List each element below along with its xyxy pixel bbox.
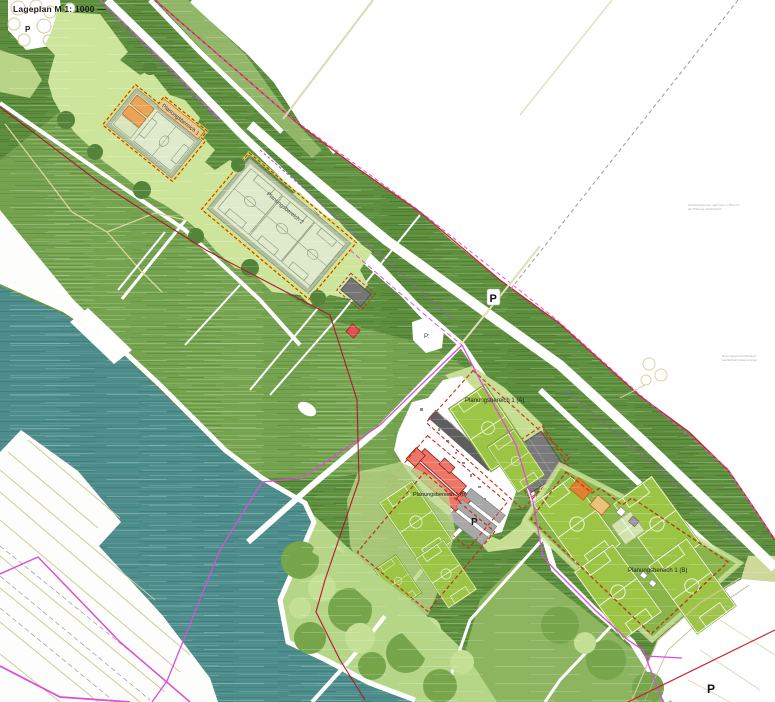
svg-text:Planungsbereich 1 (b): Planungsbereich 1 (b) <box>413 492 467 498</box>
svg-text:Lageplan M 1: 1000 —: Lageplan M 1: 1000 — <box>13 4 106 14</box>
svg-text:Planungsbereich 1 (A): Planungsbereich 1 (A) <box>465 398 524 404</box>
svg-text:der Planung nachrichtlich: der Planung nachrichtlich <box>688 207 722 211</box>
svg-text:P: P <box>707 682 715 696</box>
svg-text:P: P <box>25 25 31 34</box>
svg-text:P:: P: <box>424 334 430 340</box>
svg-text:P: P <box>490 293 497 305</box>
svg-text:nachrichtlich übernommen: nachrichtlich übernommen <box>722 358 758 362</box>
